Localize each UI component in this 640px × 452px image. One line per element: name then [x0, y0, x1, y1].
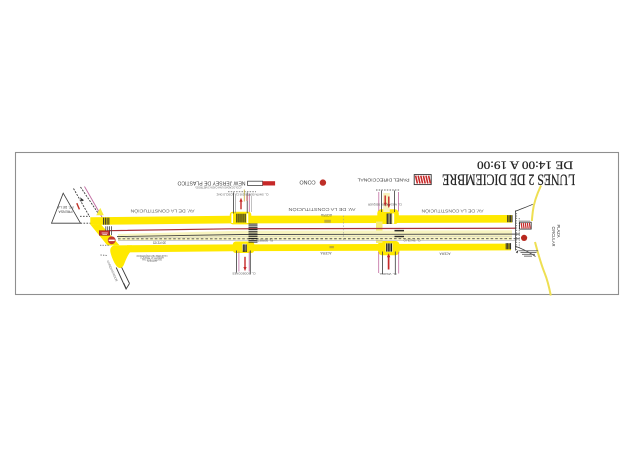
svg-text:ACERA: ACERA — [320, 213, 332, 217]
svg-text:30 PZ 05: 30 PZ 05 — [153, 241, 166, 245]
svg-text:AV. DE LA CONSTITUCIÓN: AV. DE LA CONSTITUCIÓN — [131, 209, 195, 214]
svg-text:PANEL DIRECCIONAL: PANEL DIRECCIONAL — [357, 176, 409, 182]
svg-text:AV. DE LA CONSTITUCIÓN: AV. DE LA CONSTITUCIÓN — [289, 207, 356, 212]
svg-text:ANTOLIN: ANTOLIN — [147, 259, 157, 262]
svg-text:CL. SANTA GERTRUDIS CL. ACISC: CL. SANTA GERTRUDIS CL. ACISCLO DIAZ — [216, 192, 268, 196]
svg-text:PZ. DE LA: PZ. DE LA — [57, 205, 74, 209]
svg-text:AV. DE LA CONSTITUCIÓN: AV. DE LA CONSTITUCIÓN — [422, 209, 484, 214]
svg-text:(COLOCADAS UNA CADA 2 METROS): (COLOCADAS UNA CADA 2 METROS) — [195, 186, 241, 190]
svg-text:CL. BODEGONES: CL. BODEGONES — [232, 272, 255, 276]
svg-text:DE 14:00 A 19:00: DE 14:00 A 19:00 — [477, 159, 573, 171]
svg-text:CL. VINADEL: CL. VINADEL — [379, 272, 397, 276]
svg-text:PL. SERRETA: PL. SERRETA — [256, 239, 273, 243]
svg-text:NEW JERSEY DE PLASTICO: NEW JERSEY DE PLASTICO — [178, 179, 246, 185]
svg-text:PRENSA: PRENSA — [58, 210, 73, 214]
svg-text:CL. SALZILLO: CL. SALZILLO — [404, 238, 421, 242]
svg-text:ACERA: ACERA — [320, 251, 332, 255]
svg-text:CIRCULAR: CIRCULAR — [551, 227, 556, 247]
svg-text:CONO: CONO — [299, 179, 315, 185]
svg-text:ACERA: ACERA — [439, 251, 451, 255]
svg-text:CL. ALEJANDRO SEIQUER: CL. ALEJANDRO SEIQUER — [368, 203, 402, 207]
svg-text:LUNES 2 DE DICIEMBRE: LUNES 2 DE DICIEMBRE — [442, 171, 575, 188]
